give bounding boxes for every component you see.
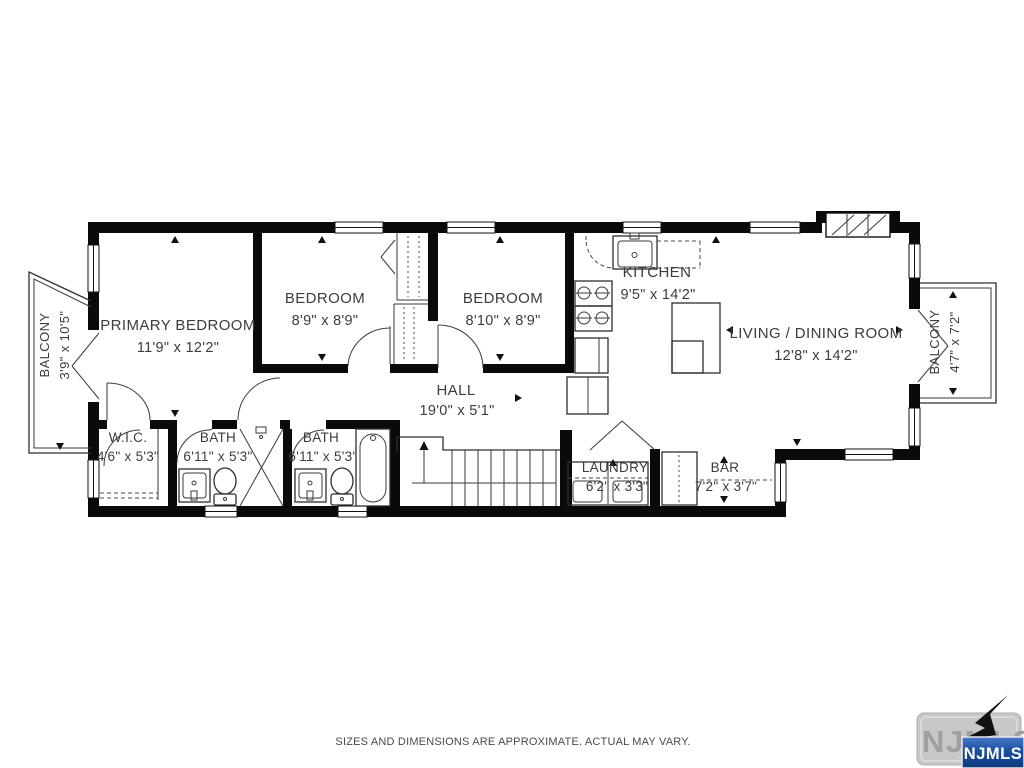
room-label-bath-1: BATH 6'11" x 5'3" [183,430,252,464]
room-label-primary-bedroom: PRIMARY BEDROOM 11'9" x 12'2" [100,317,255,356]
floor-plan-canvas: PRIMARY BEDROOM 11'9" x 12'2" BEDROOM 8'… [0,0,1024,768]
svg-text:19'0" x 5'1": 19'0" x 5'1" [419,403,494,419]
room-label-balcony-left: BALCONY 3'9" x 10'5" [37,311,72,380]
room-label-wic: W.I.C. 4'6" x 5'3" [97,430,159,464]
svg-text:W.I.C.: W.I.C. [109,430,148,445]
svg-text:6'11" x 5'3": 6'11" x 5'3" [183,449,252,464]
svg-text:3'9" x 10'5": 3'9" x 10'5" [57,311,72,380]
svg-text:BAR: BAR [711,460,740,475]
svg-text:8'9" x 8'9": 8'9" x 8'9" [292,313,359,329]
njmls-badge: NJMLS [964,745,1022,763]
svg-text:7'2" x 3'7": 7'2" x 3'7" [695,479,757,494]
interior-walls [99,233,660,506]
toilet-icon [214,468,236,505]
room-label-bedroom-1: BEDROOM 8'9" x 8'9" [285,290,365,329]
fireplace [826,213,890,237]
svg-text:6'2" x 3'3": 6'2" x 3'3" [586,479,648,494]
room-label-laundry: LAUNDRY 6'2" x 3'3" [582,460,648,494]
svg-text:4'7" x 7'2": 4'7" x 7'2" [947,311,962,372]
svg-text:LAUNDRY: LAUNDRY [582,460,648,475]
svg-text:BATH: BATH [200,430,236,445]
svg-text:PRIMARY BEDROOM: PRIMARY BEDROOM [100,317,255,334]
svg-text:BALCONY: BALCONY [927,310,942,375]
kitchen-cabinet [567,377,608,414]
svg-text:11'9" x 12'2": 11'9" x 12'2" [137,340,219,356]
shower-icon [240,427,283,506]
svg-text:KITCHEN: KITCHEN [623,264,692,281]
room-label-bar: BAR 7'2" x 3'7" [695,460,757,494]
balcony-door-opening [88,330,99,402]
svg-text:6'11" x 5'3": 6'11" x 5'3" [288,449,357,464]
tall-cabinet [662,452,697,505]
disclaimer-text: SIZES AND DIMENSIONS ARE APPROXIMATE. AC… [335,736,690,748]
dining-table [672,303,720,373]
stairs-up-arrow [420,441,429,450]
room-label-bedroom-2: BEDROOM 8'10" x 8'9" [463,290,543,329]
bathtub-icon [356,429,390,506]
svg-text:12'8" x 14'2": 12'8" x 14'2" [774,348,857,364]
stove-icon [575,281,612,331]
svg-text:4'6" x 5'3": 4'6" x 5'3" [97,449,159,464]
room-label-kitchen: KITCHEN 9'5" x 14'2" [620,264,695,303]
svg-text:BEDROOM: BEDROOM [285,290,365,307]
svg-text:LIVING / DINING ROOM: LIVING / DINING ROOM [729,325,902,342]
svg-text:BATH: BATH [303,430,339,445]
svg-text:BEDROOM: BEDROOM [463,290,543,307]
room-label-living-dining: LIVING / DINING ROOM 12'8" x 14'2" [729,325,902,364]
room-label-hall: HALL 19'0" x 5'1" [419,382,494,419]
kitchen-fixtures [567,233,700,414]
toilet-icon [331,468,353,505]
bath-sink-icon [179,469,210,502]
njmls-logo: NJMLS NJMLS [917,695,1024,768]
staircase [397,437,560,506]
svg-text:HALL: HALL [436,382,475,399]
svg-text:9'5" x 14'2": 9'5" x 14'2" [620,287,695,303]
svg-text:BALCONY: BALCONY [37,313,52,378]
bath-sink-icon [295,469,326,502]
fridge-icon [575,338,608,373]
svg-text:8'10" x 8'9": 8'10" x 8'9" [465,313,540,329]
room-label-bath-2: BATH 6'11" x 5'3" [288,430,357,464]
